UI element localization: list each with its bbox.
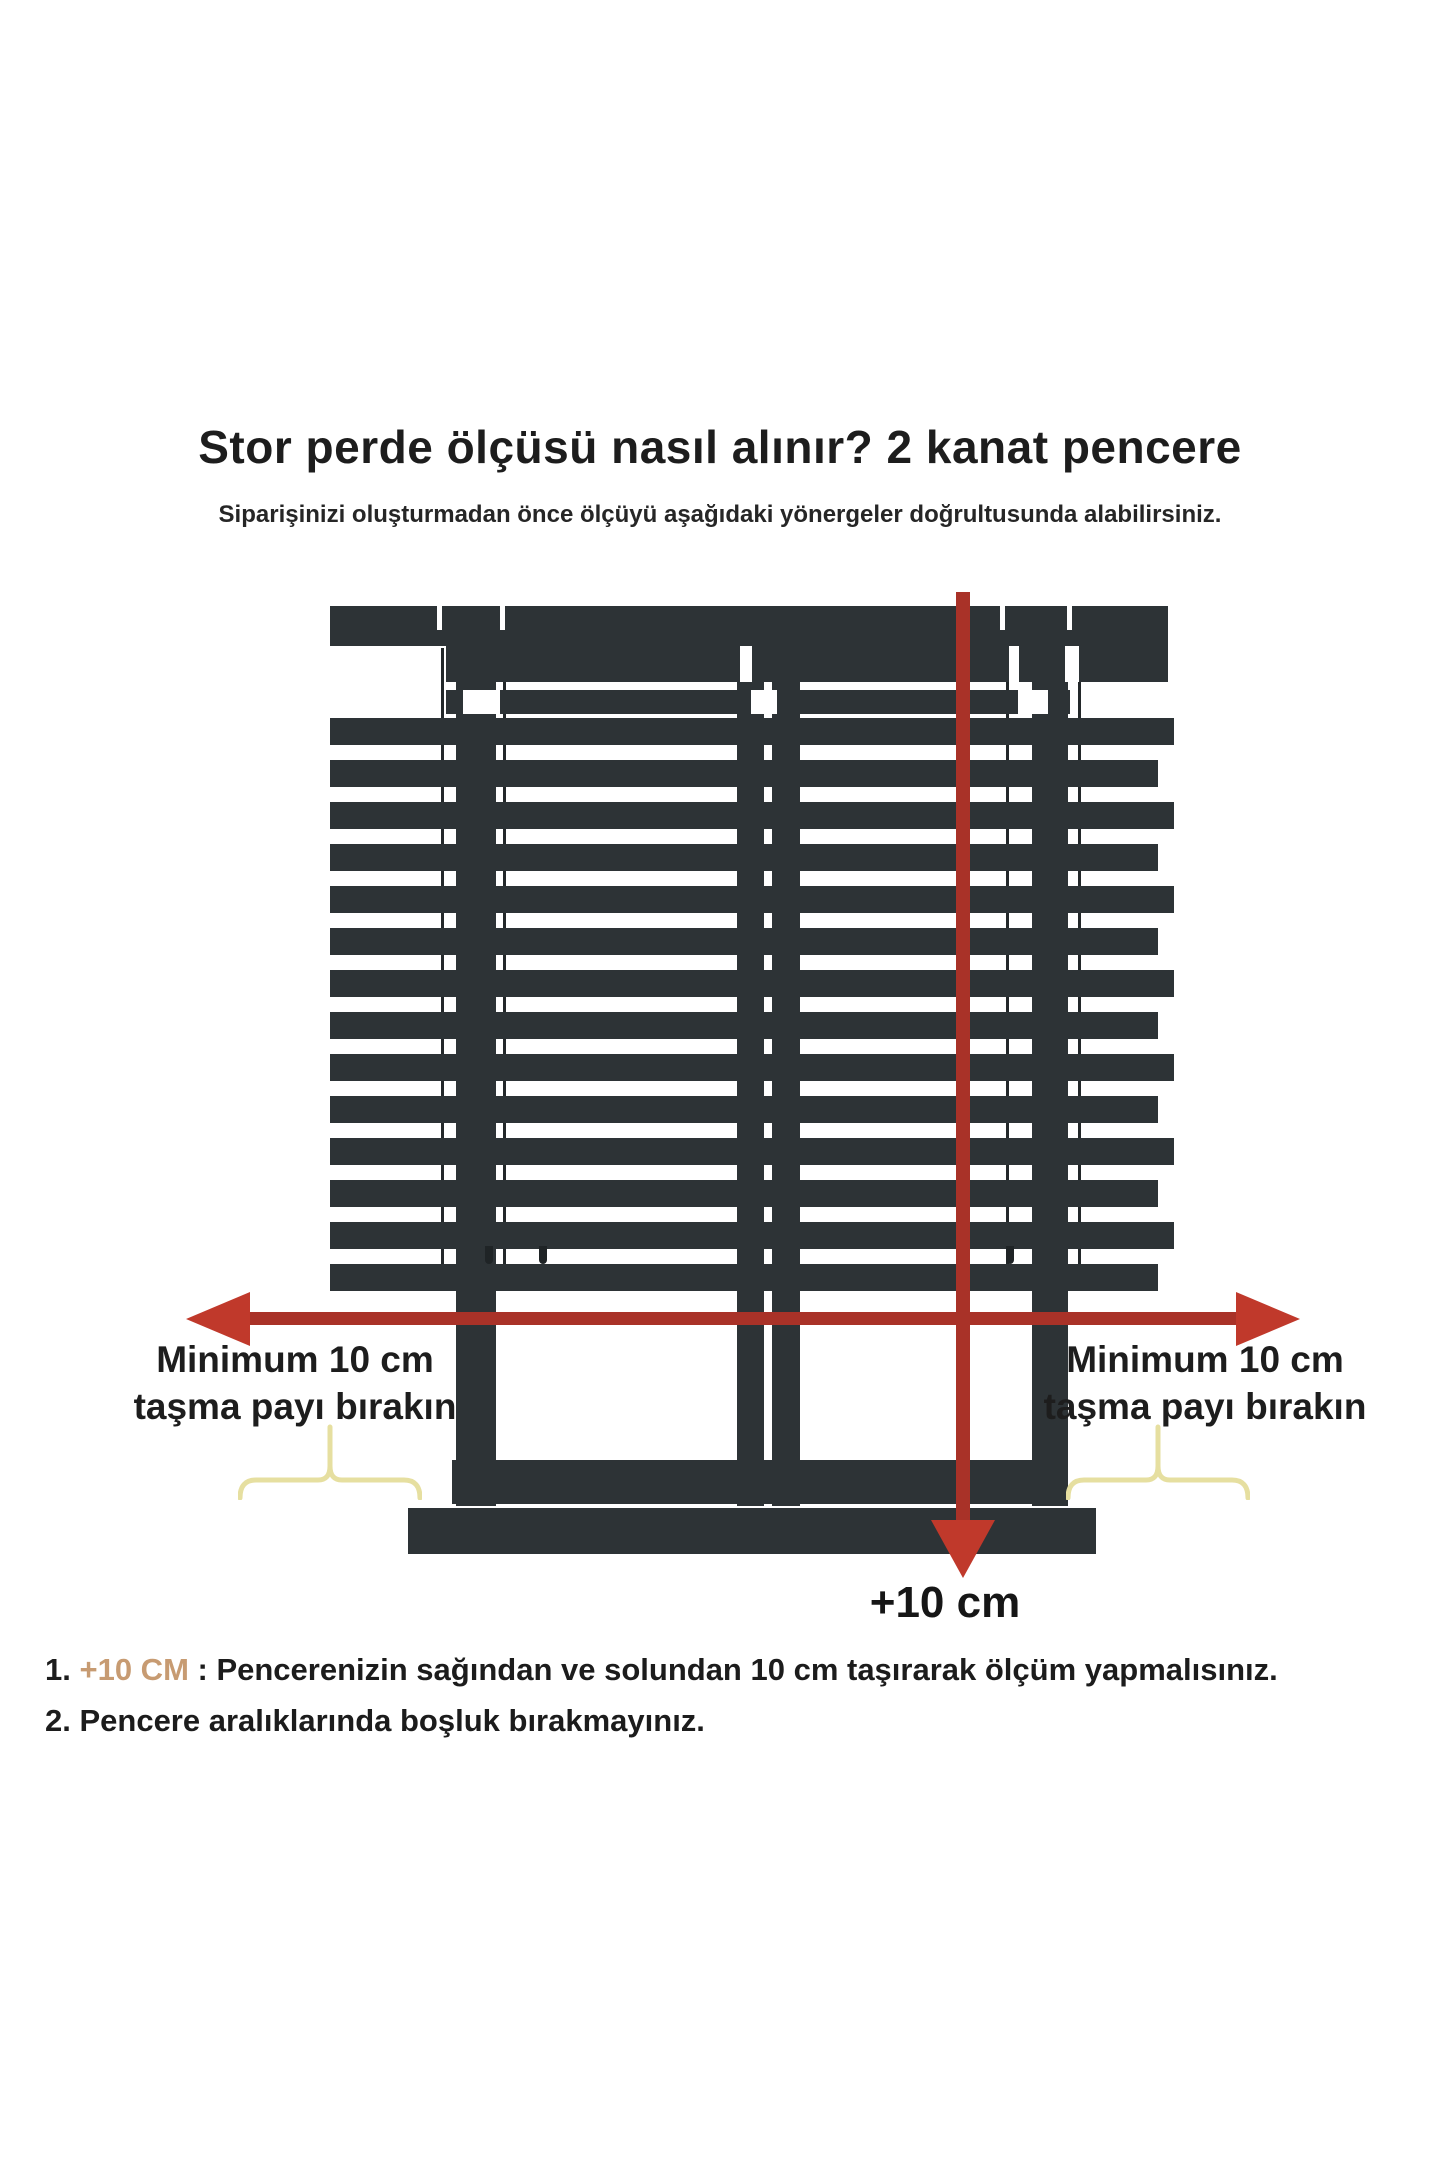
measurement-guide: Stor perde ölçüsü nasıl alınır? 2 kanat …: [0, 0, 1440, 2160]
page-subtitle: Siparişinizi oluşturmadan önce ölçüyü aş…: [0, 501, 1440, 529]
instruction-text: Pencere aralıklarında boşluk bırakmayını…: [71, 1703, 705, 1738]
note-line: Minimum 10 cm: [115, 1336, 475, 1383]
cord-hook-icon: [1006, 1246, 1014, 1264]
left-brace-icon: [238, 1424, 422, 1500]
right-overhang-note: Minimum 10 cm taşma payı bırakın: [1025, 1336, 1385, 1430]
instruction-2: 2. Pencere aralıklarında boşluk bırakmay…: [45, 1695, 1415, 1746]
right-brace-icon: [1066, 1424, 1250, 1500]
down-arrowhead-icon: [931, 1520, 995, 1578]
blind-headrail: [330, 606, 1168, 646]
cord-hook-icon: [539, 1246, 547, 1264]
valance-seam: [463, 690, 500, 714]
blind-slats: [330, 718, 1174, 1291]
width-measure-arrow: [212, 1312, 1258, 1325]
instruction-1: 1. +10 CM : Pencerenizin sağından ve sol…: [45, 1644, 1415, 1695]
note-line: taşma payı bırakın: [115, 1383, 475, 1430]
valance-seam: [1009, 646, 1019, 682]
window-bottom-rail: [452, 1460, 1068, 1504]
blind-slats-right-edge: [1158, 718, 1174, 1291]
plus-10cm-label: +10 cm: [820, 1578, 1070, 1628]
page-title: Stor perde ölçüsü nasıl alınır? 2 kanat …: [0, 420, 1440, 474]
instruction-highlight: +10 CM: [79, 1652, 188, 1687]
valance-seam: [740, 646, 752, 682]
blind-valance-top: [446, 646, 1168, 682]
instruction-list: 1. +10 CM : Pencerenizin sağından ve sol…: [45, 1644, 1415, 1746]
left-overhang-note: Minimum 10 cm taşma payı bırakın: [115, 1336, 475, 1430]
valance-seam: [1018, 690, 1048, 714]
headrail-slit: [1000, 606, 1005, 630]
instruction-number: 1.: [45, 1652, 71, 1687]
blind-valance-bottom: [446, 690, 1070, 714]
note-line: Minimum 10 cm: [1025, 1336, 1385, 1383]
headrail-slit: [437, 606, 442, 630]
note-line: taşma payı bırakın: [1025, 1383, 1385, 1430]
cord-hook-icon: [485, 1246, 493, 1264]
headrail-slit: [1067, 606, 1072, 630]
headrail-slit: [500, 606, 505, 630]
height-measure-arrow: [956, 592, 970, 1526]
valance-seam: [751, 690, 777, 714]
instruction-text: : Pencerenizin sağından ve solundan 10 c…: [189, 1652, 1278, 1687]
instruction-number: 2.: [45, 1703, 71, 1738]
valance-seam: [1065, 646, 1079, 682]
